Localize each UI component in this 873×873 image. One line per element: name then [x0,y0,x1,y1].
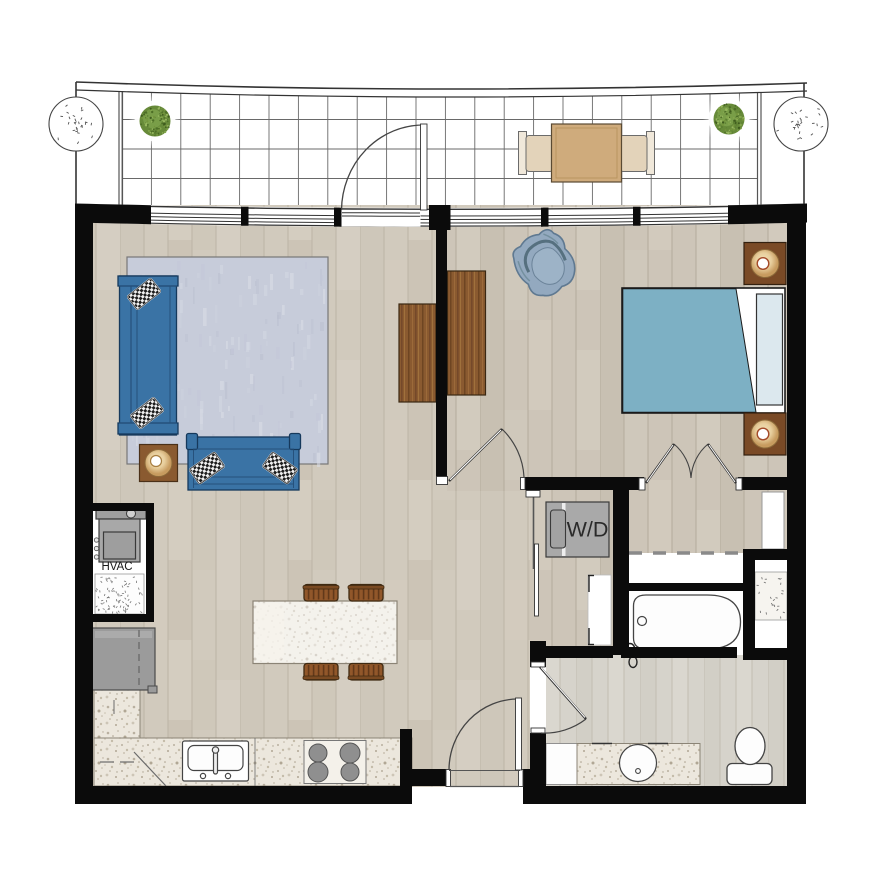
svg-text:HVAC: HVAC [101,561,132,573]
svg-text:W/D: W/D [567,518,609,542]
